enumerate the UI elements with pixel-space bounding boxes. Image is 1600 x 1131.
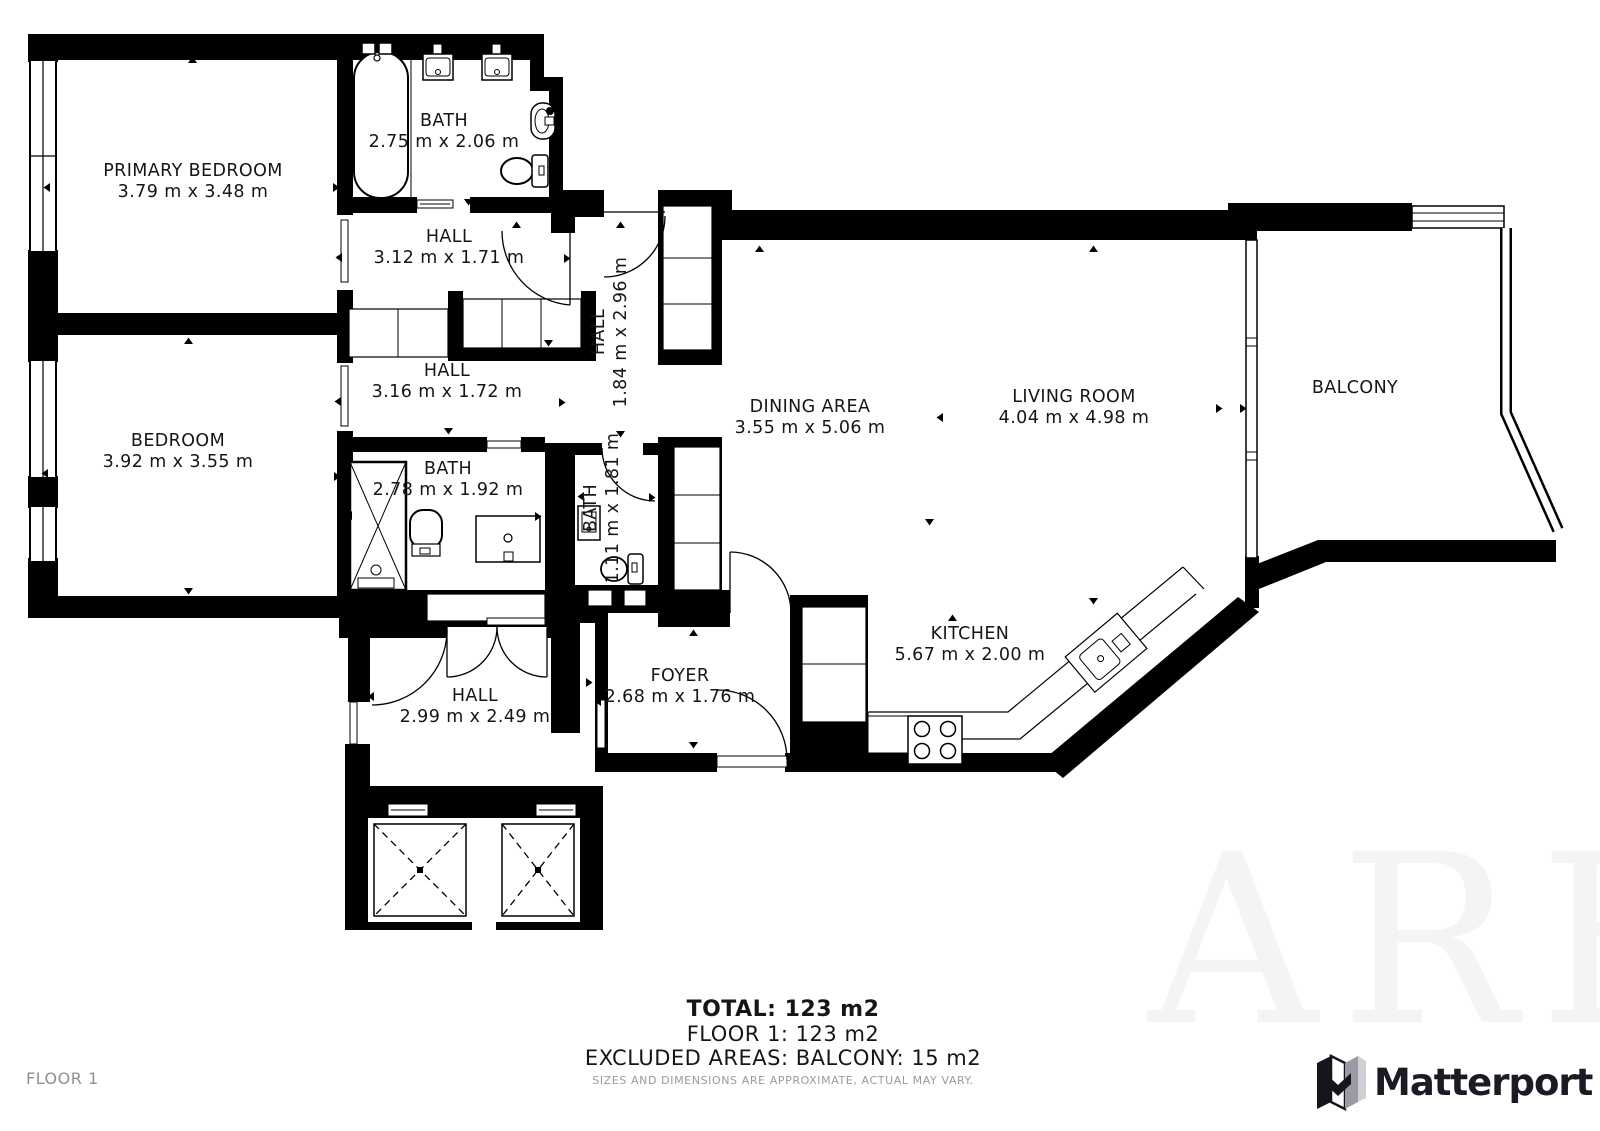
room-label-hall-mid: HALL 3.16 m x 1.72 m bbox=[372, 361, 523, 402]
svg-text:LIVING ROOM: LIVING ROOM bbox=[1012, 387, 1135, 407]
svg-text:3.79 m x 3.48 m: 3.79 m x 3.48 m bbox=[118, 182, 269, 202]
kitchen-sink-icon bbox=[1065, 613, 1147, 692]
window-icon bbox=[30, 60, 56, 252]
room-label-bedroom: BEDROOM 3.92 m x 3.55 m bbox=[103, 431, 254, 472]
svg-text:HALL: HALL bbox=[589, 309, 609, 355]
toilet-icon bbox=[501, 155, 548, 187]
sink-icon bbox=[476, 516, 540, 562]
svg-text:3.55 m x 5.06 m: 3.55 m x 5.06 m bbox=[735, 418, 886, 438]
svg-text:HALL: HALL bbox=[452, 686, 498, 706]
svg-text:BEDROOM: BEDROOM bbox=[131, 431, 225, 451]
window-icon bbox=[1412, 206, 1504, 228]
window-icon bbox=[30, 360, 56, 478]
svg-text:KITCHEN: KITCHEN bbox=[931, 624, 1010, 644]
svg-text:1.11 m x 1.81 m: 1.11 m x 1.81 m bbox=[603, 433, 623, 584]
room-label-hall-vertical: HALL 1.84 m x 2.96 m bbox=[589, 257, 631, 408]
door-arc-icon bbox=[502, 231, 570, 305]
svg-text:5.67 m x 2.00 m: 5.67 m x 2.00 m bbox=[895, 645, 1046, 665]
svg-text:1.84 m x 2.96 m: 1.84 m x 2.96 m bbox=[611, 257, 631, 408]
matterport-logo: Matterport bbox=[1317, 1056, 1593, 1109]
svg-text:DINING AREA: DINING AREA bbox=[750, 397, 871, 417]
room-label-living-room: LIVING ROOM 4.04 m x 4.98 m bbox=[999, 387, 1150, 428]
floorplan-page: ARE bbox=[0, 0, 1600, 1131]
bathtub-icon bbox=[354, 43, 411, 198]
room-label-dining-area: DINING AREA 3.55 m x 5.06 m bbox=[735, 397, 886, 438]
svg-text:2.68 m x 1.76 m: 2.68 m x 1.76 m bbox=[605, 687, 756, 707]
summary-block: TOTAL: 123 m2 FLOOR 1: 123 m2 EXCLUDED A… bbox=[585, 997, 981, 1087]
room-label-primary-bedroom: PRIMARY BEDROOM 3.79 m x 3.48 m bbox=[103, 161, 283, 202]
disclaimer-text: SIZES AND DIMENSIONS ARE APPROXIMATE, AC… bbox=[592, 1074, 973, 1087]
svg-text:BALCONY: BALCONY bbox=[1312, 378, 1398, 398]
matterport-wordmark: Matterport bbox=[1374, 1061, 1593, 1104]
door-arc-icon bbox=[730, 552, 791, 613]
floor-tag: FLOOR 1 bbox=[26, 1069, 99, 1088]
wardrobe-icon bbox=[663, 206, 712, 350]
window-icon bbox=[30, 506, 56, 562]
toilet-icon bbox=[410, 510, 442, 556]
windows bbox=[30, 60, 1504, 562]
room-label-balcony: BALCONY bbox=[1312, 378, 1398, 398]
floor-plan-svg: ARE bbox=[0, 0, 1600, 1131]
svg-text:4.04 m x 4.98 m: 4.04 m x 4.98 m bbox=[999, 408, 1150, 428]
wardrobe-icon bbox=[349, 309, 448, 357]
laundry-closet bbox=[427, 594, 545, 621]
svg-text:HALL: HALL bbox=[424, 361, 470, 381]
wardrobe-icon bbox=[463, 299, 581, 348]
wardrobe-icon bbox=[674, 447, 720, 590]
matterport-icon bbox=[1317, 1056, 1366, 1109]
svg-text:BATH: BATH bbox=[420, 111, 468, 131]
elevators bbox=[368, 804, 580, 930]
balcony-walls bbox=[1506, 228, 1558, 530]
svg-text:2.75 m x 2.06 m: 2.75 m x 2.06 m bbox=[369, 132, 520, 152]
balcony-door-icon bbox=[1246, 240, 1257, 558]
svg-text:PRIMARY BEDROOM: PRIMARY BEDROOM bbox=[103, 161, 283, 181]
floor-area-text: FLOOR 1: 123 m2 bbox=[687, 1022, 880, 1046]
svg-text:3.12 m x 1.71 m: 3.12 m x 1.71 m bbox=[374, 248, 525, 268]
room-label-hall-entry: HALL 2.99 m x 2.49 m bbox=[400, 686, 551, 727]
room-label-kitchen: KITCHEN 5.67 m x 2.00 m bbox=[895, 624, 1046, 665]
stove-icon bbox=[908, 716, 962, 764]
room-label-foyer: FOYER 2.68 m x 1.76 m bbox=[605, 666, 756, 707]
watermark-text: ARE bbox=[1146, 805, 1600, 1078]
excluded-area-text: EXCLUDED AREAS: BALCONY: 15 m2 bbox=[585, 1046, 981, 1070]
total-area-text: TOTAL: 123 m2 bbox=[687, 997, 880, 1022]
svg-text:FOYER: FOYER bbox=[651, 666, 710, 686]
svg-text:BATH: BATH bbox=[424, 459, 472, 479]
svg-text:3.92 m x 3.55 m: 3.92 m x 3.55 m bbox=[103, 452, 254, 472]
wardrobe-icon bbox=[802, 607, 866, 722]
svg-text:3.16 m x 1.72 m: 3.16 m x 1.72 m bbox=[372, 382, 523, 402]
sink-icon bbox=[531, 103, 555, 139]
svg-text:2.78 m x 1.92 m: 2.78 m x 1.92 m bbox=[373, 480, 524, 500]
svg-text:HALL: HALL bbox=[426, 227, 472, 247]
svg-text:2.99 m x 2.49 m: 2.99 m x 2.49 m bbox=[400, 707, 551, 727]
svg-text:BATH: BATH bbox=[581, 484, 601, 532]
